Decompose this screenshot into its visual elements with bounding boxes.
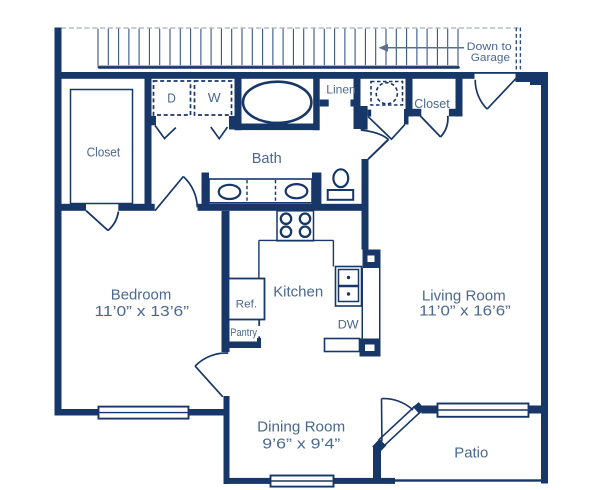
svg-text:Kitchen: Kitchen	[273, 284, 323, 301]
svg-text:Bedroom: Bedroom	[111, 287, 172, 304]
svg-text:Closet: Closet	[87, 145, 121, 159]
svg-text:11’0” x 16’6”: 11’0” x 16’6”	[419, 303, 511, 320]
svg-text:D: D	[167, 91, 176, 106]
svg-text:Bath: Bath	[252, 150, 282, 167]
svg-text:DW: DW	[338, 320, 359, 332]
svg-text:Garage: Garage	[471, 52, 510, 64]
svg-text:Dining Room: Dining Room	[257, 418, 345, 435]
svg-text:9’6” x 9’4”: 9’6” x 9’4”	[262, 436, 340, 453]
svg-text:Patio: Patio	[454, 445, 488, 462]
svg-text:Closet: Closet	[414, 97, 450, 111]
svg-text:W: W	[208, 90, 222, 105]
svg-text:Pantry: Pantry	[230, 327, 257, 339]
svg-text:Linen: Linen	[326, 83, 356, 97]
svg-text:11’0” x 13’6”: 11’0” x 13’6”	[95, 303, 190, 320]
svg-text:Ref.: Ref.	[236, 298, 257, 310]
